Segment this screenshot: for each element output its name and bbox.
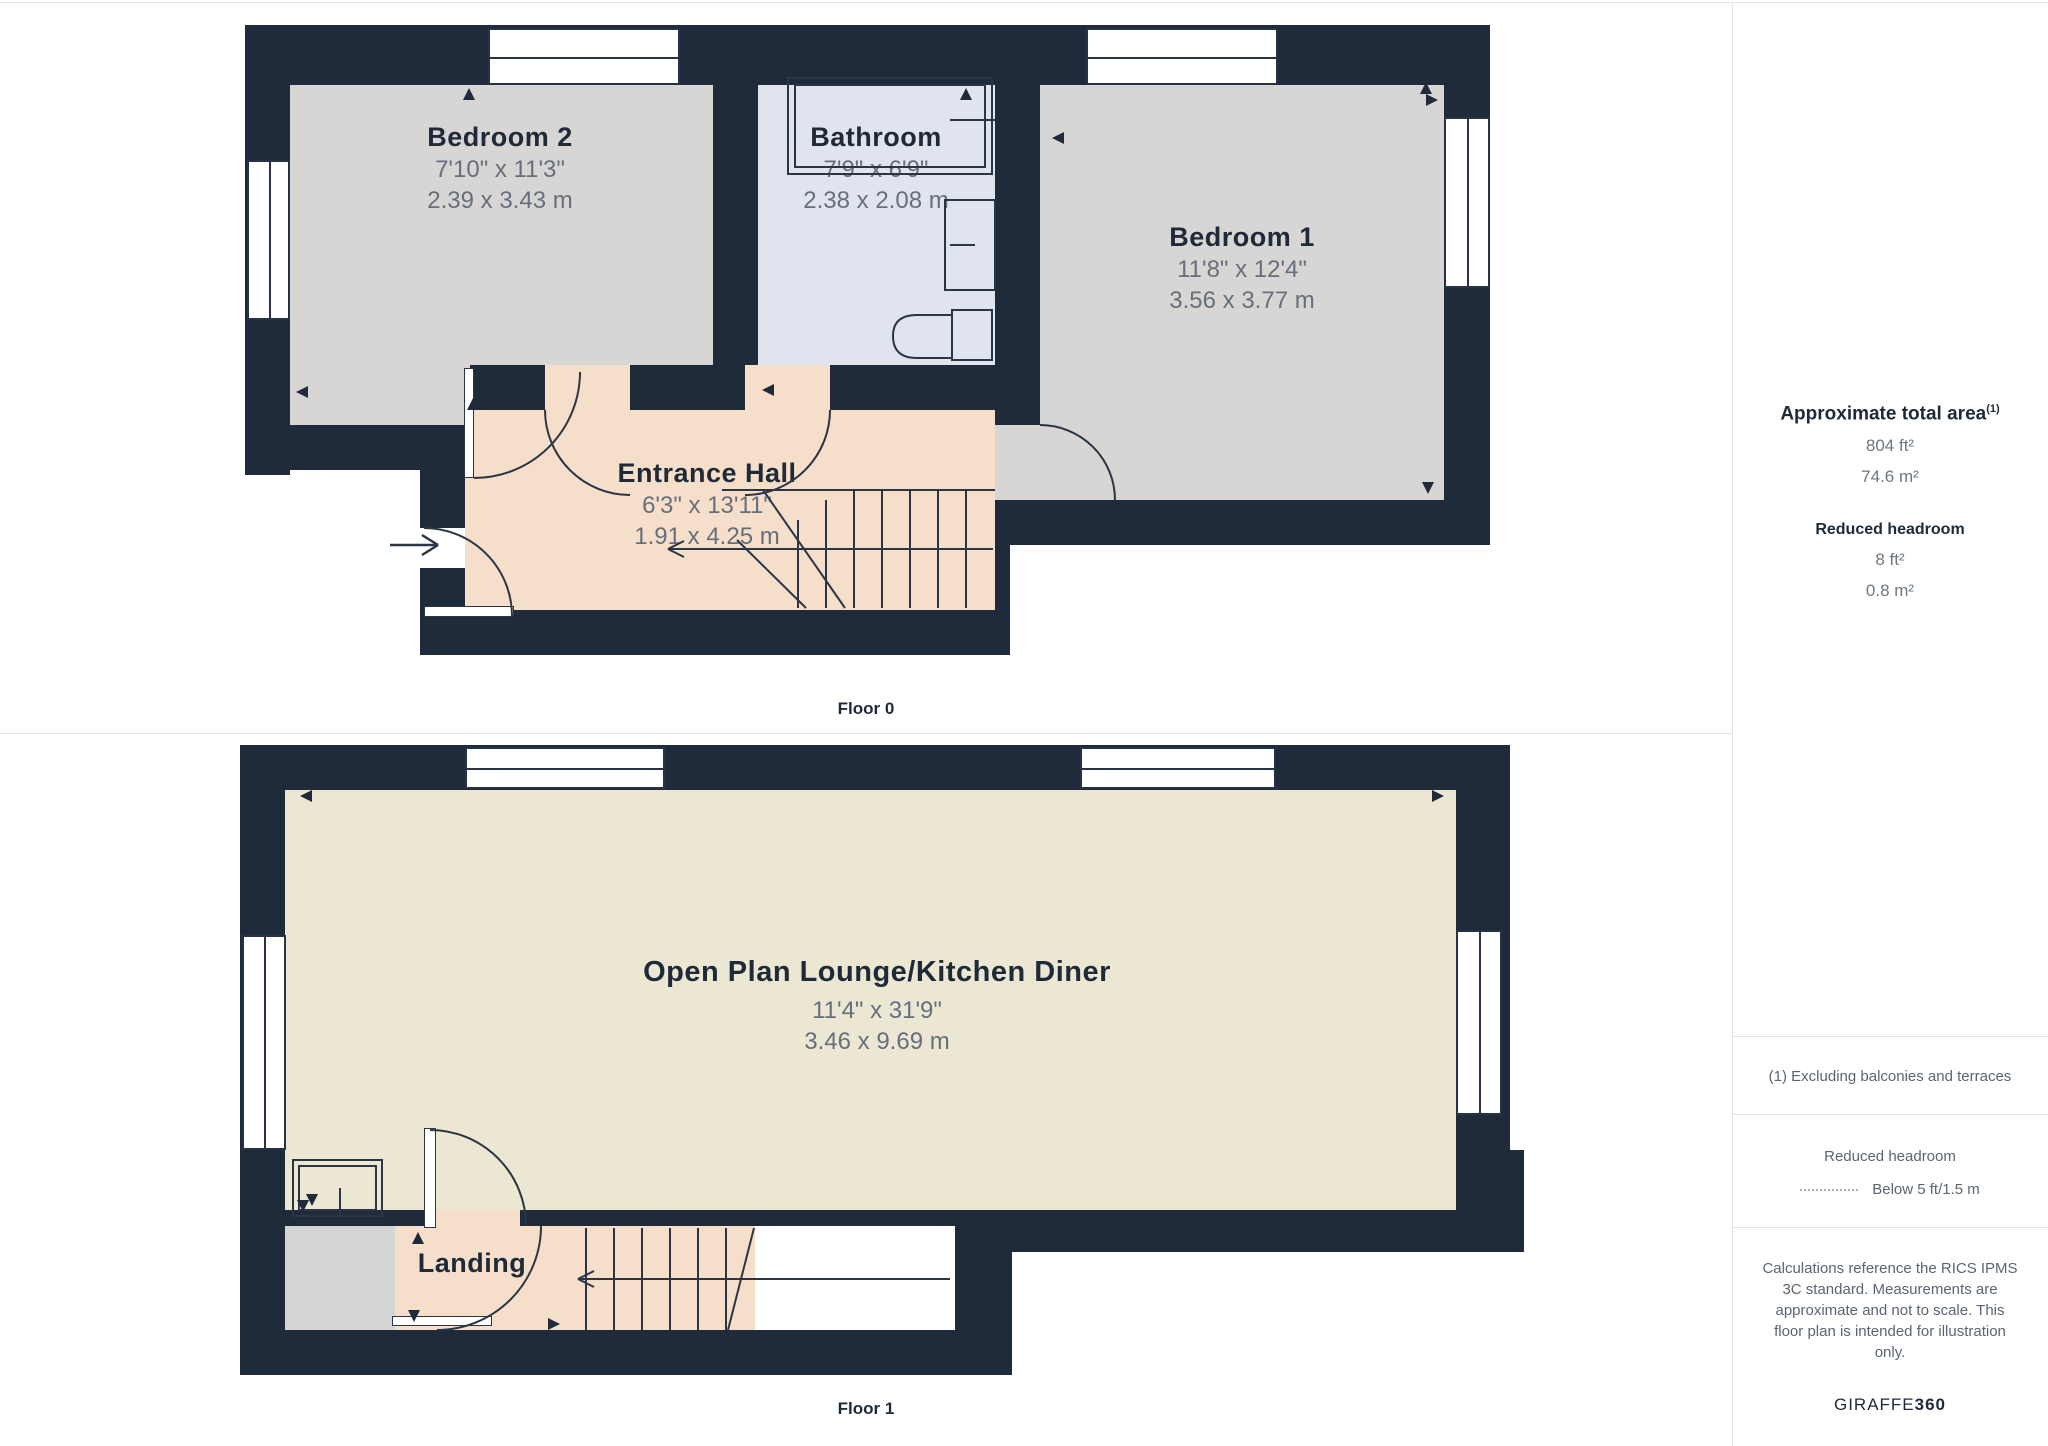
- front-door-opening: [420, 528, 465, 568]
- legend-title: Reduced headroom: [1732, 1148, 2048, 1165]
- entrance-hall-imperial: 6'3" x 13'11": [617, 492, 796, 520]
- f1-band-bottom-wall: [240, 1330, 1012, 1375]
- f1-right-wall-step: [1510, 1150, 1524, 1252]
- entrance-hall-metric: 1.91 x 4.25 m: [617, 523, 796, 551]
- bedroom2-metric: 2.39 x 3.43 m: [427, 187, 573, 215]
- f1-window-top-right: [1080, 747, 1276, 789]
- sidebar-divider-1: [1732, 1036, 2048, 1037]
- reduced-headroom-area: [285, 1226, 395, 1330]
- legend-row: Below 5 ft/1.5 m: [1732, 1181, 2048, 1198]
- bedroom2-floor-step: [290, 365, 470, 425]
- f0-window-top-right: [1086, 28, 1278, 85]
- lounge-imperial: 11'4" x 31'9": [643, 997, 1111, 1025]
- lounge-door-leaf: [424, 1128, 436, 1228]
- bedroom2-imperial: 7'10" x 11'3": [427, 156, 573, 184]
- stair-void: [755, 1226, 955, 1330]
- f1-window-top-left: [465, 747, 665, 789]
- lounge-door-opening: [424, 1210, 520, 1226]
- floor-section-divider: [0, 733, 1732, 734]
- sidebar-divider-2: [1732, 1114, 2048, 1115]
- f0-bed2-bottom-wall-left: [245, 425, 470, 470]
- total-area-footnote-marker: (1): [1986, 403, 1999, 415]
- sidebar-divider-3: [1732, 1227, 2048, 1228]
- legend-section: Reduced headroom Below 5 ft/1.5 m: [1732, 1148, 2048, 1198]
- disclaimer-text: Calculations reference the RICS IPMS 3C …: [1761, 1258, 2019, 1363]
- reduced-headroom-m: 0.8 m²: [1732, 581, 2048, 601]
- bathroom-metric: 2.38 x 2.08 m: [803, 187, 948, 215]
- bedroom2-door-opening: [545, 365, 630, 410]
- f0-window-right: [1444, 117, 1490, 288]
- total-area-section: Approximate total area(1) 804 ft² 74.6 m…: [1732, 403, 2048, 601]
- bedroom2-door-leaf: [464, 368, 474, 478]
- info-sidebar: Approximate total area(1) 804 ft² 74.6 m…: [1732, 0, 2048, 1446]
- f0-window-left: [247, 160, 290, 320]
- f1-stairs-floor: [555, 1226, 755, 1330]
- floorplan-page: Bedroom 2 7'10" x 11'3" 2.39 x 3.43 m Ba…: [0, 0, 2048, 1446]
- total-area-m: 74.6 m²: [1732, 467, 2048, 487]
- landing-name: Landing: [418, 1248, 526, 1279]
- entrance-hall-label: Entrance Hall 6'3" x 13'11" 1.91 x 4.25 …: [617, 458, 796, 551]
- landing-label: Landing: [418, 1248, 526, 1279]
- f1-lounge-bottom-wall-left: [285, 1210, 1010, 1226]
- floor1-caption: Floor 1: [0, 1399, 1732, 1419]
- lounge-label: Open Plan Lounge/Kitchen Diner 11'4" x 3…: [643, 956, 1111, 1056]
- f1-top-wall: [240, 745, 1510, 790]
- floor0-caption: Floor 0: [0, 699, 1732, 719]
- f1-window-right: [1456, 930, 1502, 1115]
- lounge-name: Open Plan Lounge/Kitchen Diner: [643, 956, 1111, 989]
- bedroom1-imperial: 11'8" x 12'4": [1169, 256, 1315, 284]
- f1-lounge-bottom-wall-right: [1010, 1210, 1510, 1252]
- bathroom-imperial: 7'9" x 6'9": [803, 156, 948, 184]
- bedroom1-door-opening: [995, 425, 1040, 500]
- disclaimer-section: Calculations reference the RICS IPMS 3C …: [1732, 1258, 2048, 1415]
- reduced-headroom-title: Reduced headroom: [1732, 521, 2048, 539]
- bathroom-name: Bathroom: [803, 122, 948, 153]
- landing-cupboard-leaf: [392, 1316, 492, 1326]
- footnote-text: (1) Excluding balconies and terraces: [1732, 1068, 2048, 1085]
- f0-top-wall: [245, 25, 1490, 85]
- bedroom2-label: Bedroom 2 7'10" x 11'3" 2.39 x 3.43 m: [427, 122, 573, 215]
- bedroom1-metric: 3.56 x 3.77 m: [1169, 287, 1315, 315]
- f1-window-left: [242, 935, 286, 1150]
- giraffe360-logo: GIRAFFE360: [1732, 1395, 2048, 1415]
- total-area-title: Approximate total area(1): [1732, 403, 2048, 425]
- bedroom1-label: Bedroom 1 11'8" x 12'4" 3.56 x 3.77 m: [1169, 222, 1315, 315]
- bedroom2-name: Bedroom 2: [427, 122, 573, 153]
- f0-window-top-left: [488, 28, 680, 85]
- reduced-headroom-ft: 8 ft²: [1732, 550, 2048, 570]
- dotted-line-icon: [1800, 1189, 1858, 1191]
- bedroom1-name: Bedroom 1: [1169, 222, 1315, 253]
- legend-value: Below 5 ft/1.5 m: [1872, 1181, 1980, 1198]
- footnote-section: (1) Excluding balconies and terraces: [1732, 1068, 2048, 1085]
- front-door-leaf: [424, 606, 514, 617]
- f1-void-right-wall: [955, 1226, 1012, 1330]
- bathroom-label: Bathroom 7'9" x 6'9" 2.38 x 2.08 m: [803, 122, 948, 215]
- bathroom-door-opening: [745, 365, 830, 410]
- entrance-hall-name: Entrance Hall: [617, 458, 796, 489]
- total-area-ft: 804 ft²: [1732, 436, 2048, 456]
- lounge-metric: 3.46 x 9.69 m: [643, 1028, 1111, 1056]
- brand-bold: 360: [1915, 1395, 1946, 1414]
- brand-regular: GIRAFFE: [1834, 1395, 1915, 1414]
- f0-bed1-bottom-wall: [995, 500, 1490, 545]
